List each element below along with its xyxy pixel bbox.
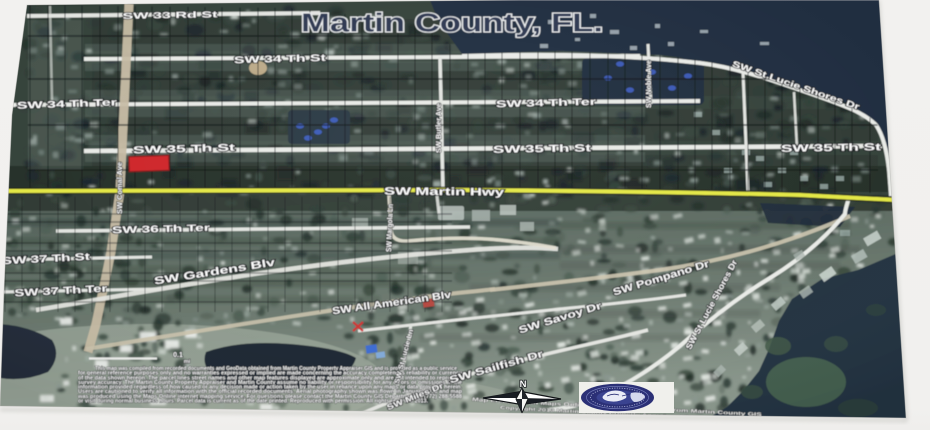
svg-text:N: N xyxy=(520,379,527,390)
